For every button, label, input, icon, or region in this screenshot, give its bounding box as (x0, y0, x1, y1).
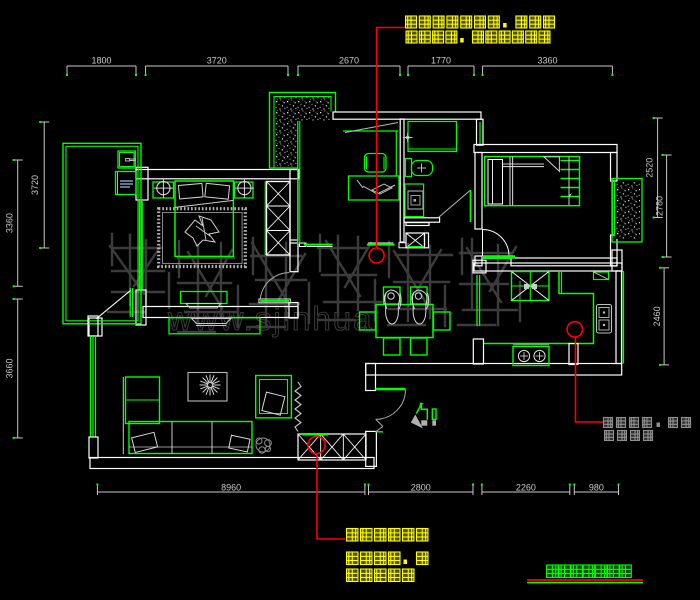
svg-text:2520: 2520 (645, 158, 655, 178)
svg-text:2670: 2670 (339, 56, 359, 66)
svg-text:2460: 2460 (652, 306, 662, 326)
svg-text:3720: 3720 (30, 175, 40, 195)
svg-text:1770: 1770 (431, 56, 451, 66)
svg-text:2780: 2780 (655, 196, 665, 216)
svg-text:2260: 2260 (516, 483, 536, 493)
svg-text:1800: 1800 (91, 56, 111, 66)
svg-text:3720: 3720 (207, 56, 227, 66)
svg-text:3660: 3660 (5, 358, 15, 378)
svg-text:8960: 8960 (221, 483, 241, 493)
svg-text:2800: 2800 (411, 483, 431, 493)
svg-text:3360: 3360 (5, 213, 15, 233)
svg-text:980: 980 (589, 483, 604, 493)
svg-text:3360: 3360 (537, 56, 557, 66)
